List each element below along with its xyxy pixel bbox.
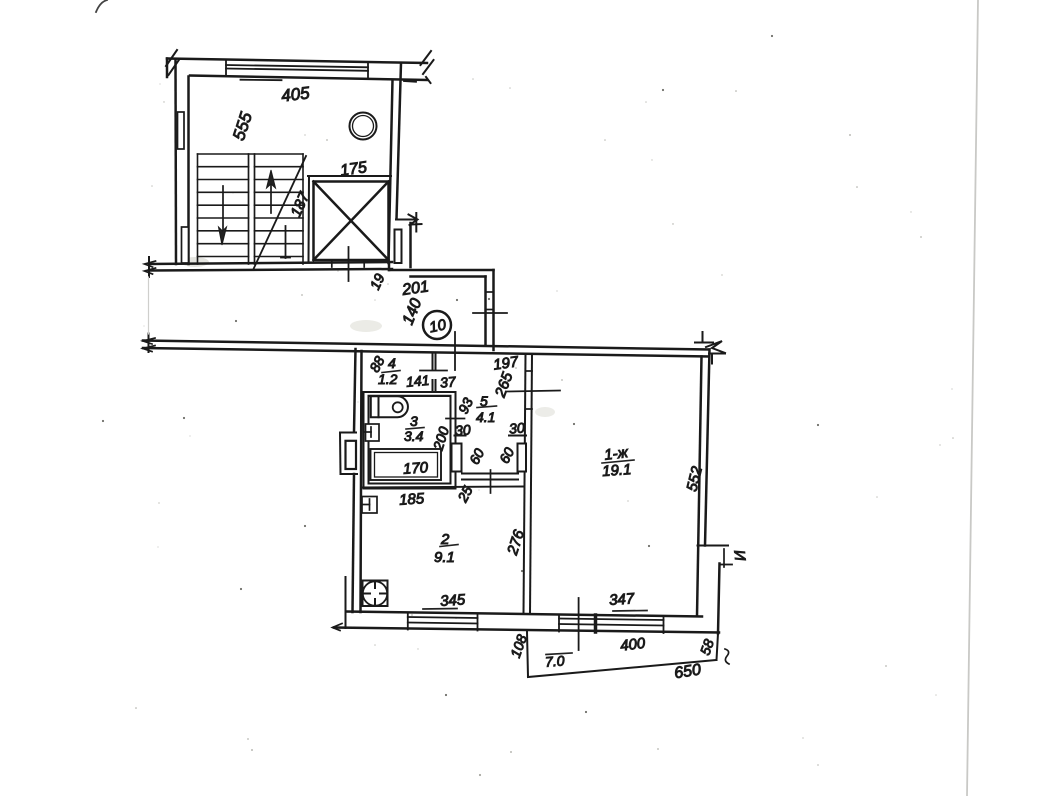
svg-text:185: 185 — [399, 490, 426, 509]
svg-text:9.1: 9.1 — [434, 549, 455, 566]
svg-text:650: 650 — [673, 661, 702, 682]
svg-text:140: 140 — [400, 296, 426, 327]
svg-text:405: 405 — [280, 83, 311, 105]
svg-text:347: 347 — [609, 590, 636, 609]
svg-text:4.1: 4.1 — [476, 409, 495, 425]
svg-text:265: 265 — [492, 370, 517, 401]
svg-text:3.4: 3.4 — [404, 428, 424, 444]
svg-text:30: 30 — [508, 419, 525, 436]
svg-text:201: 201 — [400, 278, 430, 299]
svg-text:1.2: 1.2 — [378, 371, 398, 387]
svg-text:60: 60 — [496, 445, 518, 466]
svg-text:170: 170 — [402, 459, 429, 478]
svg-text:58: 58 — [697, 637, 717, 657]
svg-text:10: 10 — [428, 316, 448, 336]
svg-text:19.1: 19.1 — [602, 461, 632, 480]
svg-text:552: 552 — [684, 464, 707, 493]
svg-text:И: И — [730, 549, 748, 562]
svg-text:141: 141 — [405, 372, 430, 390]
svg-text:197: 197 — [492, 353, 520, 373]
svg-text:93: 93 — [455, 395, 476, 416]
svg-text:37: 37 — [439, 373, 457, 390]
svg-text:555: 555 — [229, 109, 256, 142]
svg-text:19: 19 — [367, 271, 388, 292]
svg-text:60: 60 — [466, 446, 488, 467]
svg-text:400: 400 — [619, 635, 647, 655]
svg-text:4: 4 — [388, 355, 396, 371]
svg-text:3: 3 — [410, 413, 418, 429]
svg-text:345: 345 — [440, 591, 467, 610]
